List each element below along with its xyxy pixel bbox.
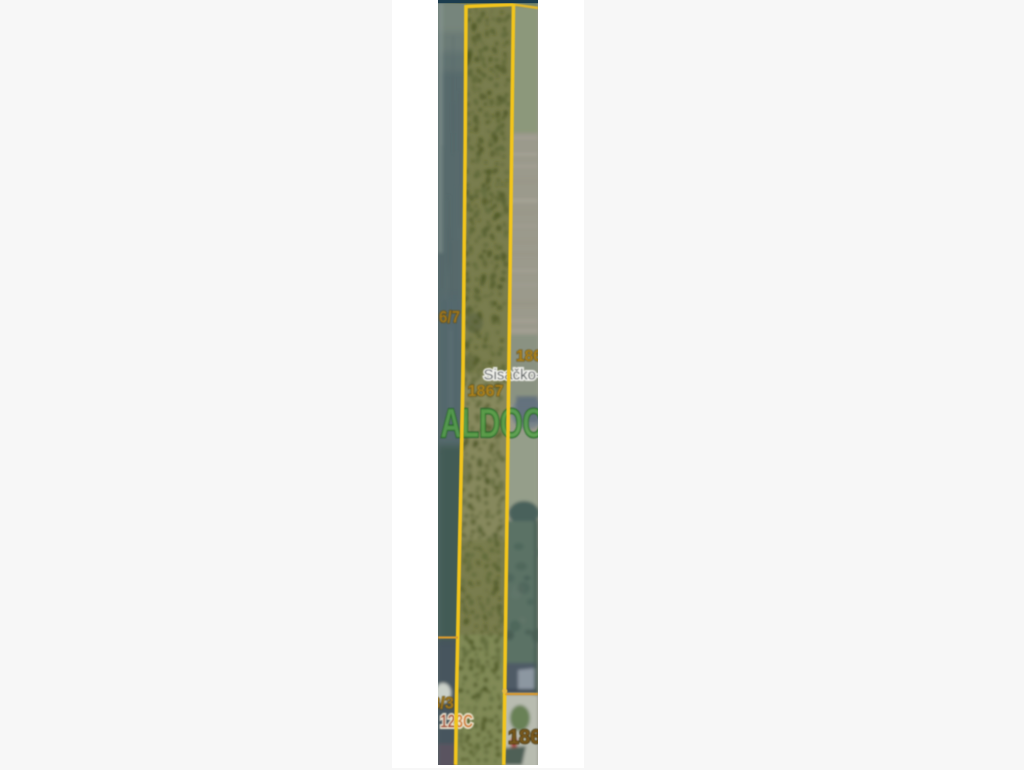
svg-text:1866: 1866 [516, 348, 538, 365]
svg-text:Sisačko-mo: Sisačko-mo [484, 367, 539, 384]
svg-text:6/7: 6/7 [439, 308, 460, 327]
svg-text:1865: 1865 [508, 727, 538, 749]
svg-text:1867: 1867 [468, 383, 504, 400]
svg-text:ALDOC: ALDOC [441, 400, 539, 446]
